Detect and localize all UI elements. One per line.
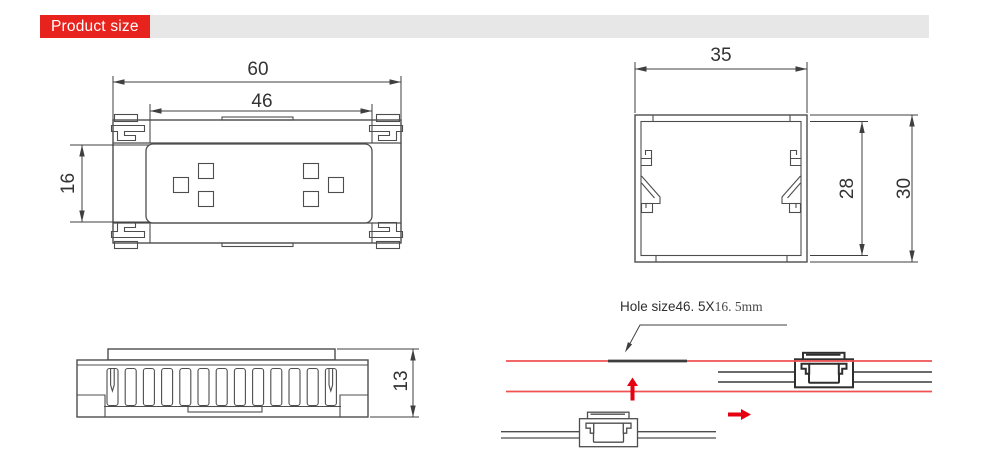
installation-diagram: Hole size46. 5X16. 5mm bbox=[501, 299, 932, 447]
dim-width-35: 35 bbox=[635, 45, 807, 113]
dim-13-label: 13 bbox=[391, 370, 412, 391]
dim-outer-height-30: 30 bbox=[810, 115, 918, 262]
dim-28-label: 28 bbox=[837, 178, 858, 199]
dim-35-label: 35 bbox=[710, 45, 731, 66]
dim-30-label: 30 bbox=[894, 178, 915, 199]
hole-leader-arrow bbox=[625, 325, 787, 353]
top-center-lip bbox=[222, 117, 293, 120]
dim-60-label: 60 bbox=[247, 59, 268, 80]
module-cross-section-unmounted bbox=[580, 412, 638, 447]
front-body-outline bbox=[113, 120, 401, 243]
page-background: Product size bbox=[0, 0, 1000, 471]
dim-46-label: 46 bbox=[251, 91, 272, 112]
section-view-drawing: 35 28 30 bbox=[635, 45, 918, 262]
dim-inner-height-28: 28 bbox=[810, 122, 868, 256]
insert-up-arrow bbox=[627, 378, 638, 401]
bottom-center-lip bbox=[222, 243, 293, 247]
profile-top-plate bbox=[108, 349, 335, 360]
slide-right-arrow bbox=[728, 409, 751, 420]
front-view-drawing: 60 46 16 bbox=[58, 59, 403, 249]
module-cross-section-mounted bbox=[795, 353, 853, 388]
section-body-outline bbox=[635, 115, 807, 262]
dim-16-label: 16 bbox=[58, 173, 79, 194]
profile-view-drawing: 13 bbox=[77, 349, 419, 417]
dim-inner-width-46: 46 bbox=[150, 91, 372, 120]
technical-drawing-canvas: 60 46 16 bbox=[0, 0, 1000, 471]
hole-size-label: Hole size46. 5X16. 5mm bbox=[620, 299, 763, 314]
